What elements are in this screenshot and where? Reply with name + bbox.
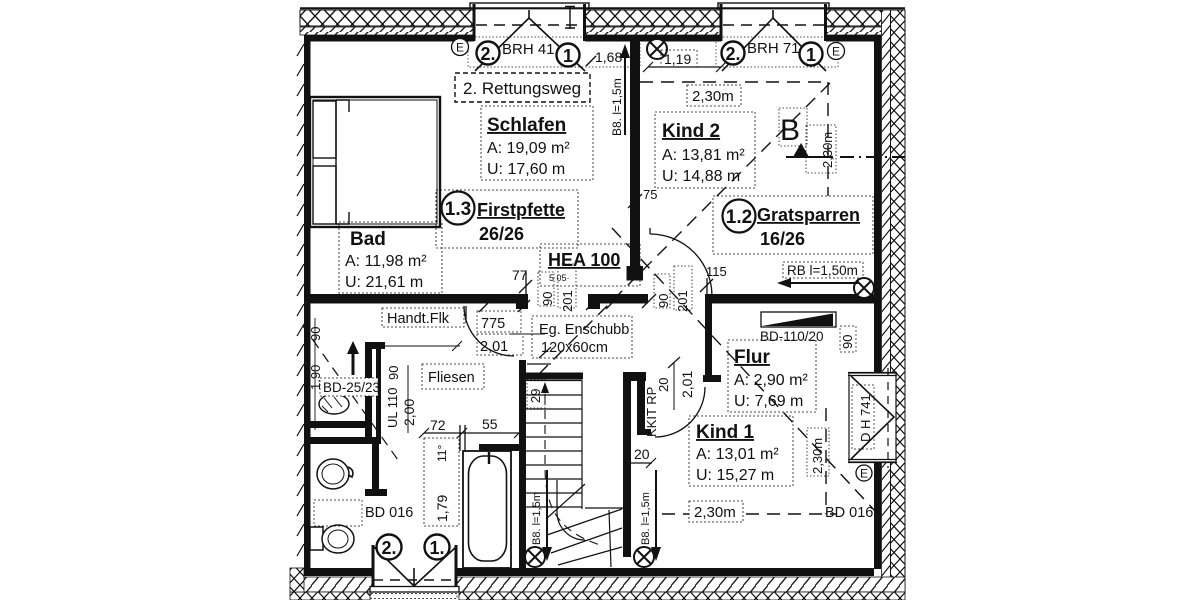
svg-text:E: E	[860, 467, 868, 481]
svg-text:BD 016: BD 016	[365, 505, 413, 521]
svg-text:2,30m: 2,30m	[810, 438, 825, 474]
svg-text:A: 11,98 m²: A: 11,98 m²	[345, 253, 427, 270]
svg-text:1.: 1.	[429, 538, 444, 558]
svg-text:1,68: 1,68	[595, 49, 622, 65]
svg-text:U: 17,60 m: U: 17,60 m	[487, 161, 565, 178]
svg-text:HEA 100: HEA 100	[548, 250, 620, 270]
svg-text:20: 20	[634, 446, 650, 462]
svg-text:29: 29	[528, 389, 543, 403]
svg-text:A: 13,01 m²: A: 13,01 m²	[696, 446, 779, 463]
svg-text:20: 20	[656, 378, 671, 392]
svg-text:Bad: Bad	[350, 229, 386, 250]
svg-text:A: 13,81 m²: A: 13,81 m²	[662, 147, 745, 164]
svg-text:55: 55	[482, 416, 498, 432]
svg-text:1: 1	[806, 45, 816, 65]
svg-text:U: 14,88 m: U: 14,88 m	[662, 168, 740, 185]
svg-text:BD 016: BD 016	[825, 505, 873, 521]
svg-text:2.: 2.	[725, 44, 740, 64]
svg-text:2,30m: 2,30m	[692, 88, 734, 105]
svg-text:1,19: 1,19	[664, 51, 691, 67]
svg-text:2. Rettungsweg: 2. Rettungsweg	[463, 79, 581, 98]
svg-text:A: 19,09 m²: A: 19,09 m²	[487, 140, 570, 157]
svg-text:B8. l=1,5m: B8. l=1,5m	[640, 492, 652, 545]
svg-text:1.3: 1.3	[445, 199, 471, 220]
svg-text:775: 775	[481, 316, 505, 332]
svg-text:E: E	[832, 45, 840, 59]
svg-text:KKIT RP: KKIT RP	[644, 387, 659, 437]
svg-text:72: 72	[430, 417, 446, 433]
svg-text:90: 90	[656, 294, 671, 308]
svg-text:Firstpfette: Firstpfette	[477, 200, 565, 220]
svg-text:90: 90	[540, 292, 555, 306]
svg-text:201: 201	[675, 290, 690, 312]
svg-text:Schlafen: Schlafen	[487, 115, 566, 136]
svg-text:Flur: Flur	[734, 347, 770, 368]
svg-text:2,00: 2,00	[401, 399, 417, 426]
svg-text:5 05·: 5 05·	[549, 273, 570, 283]
svg-text:1,79: 1,79	[434, 495, 450, 522]
svg-text:B8. l=1,5m: B8. l=1,5m	[531, 492, 543, 545]
svg-text:2,01: 2,01	[679, 371, 695, 398]
svg-text:U: 15,27 m: U: 15,27 m	[696, 467, 774, 484]
svg-text:Handt.Flk: Handt.Flk	[387, 311, 450, 327]
svg-text:1.2: 1.2	[726, 207, 752, 228]
svg-text:26/26: 26/26	[479, 224, 524, 244]
svg-text:Kind 1: Kind 1	[696, 422, 754, 443]
svg-text:BD-25/23: BD-25/23	[323, 380, 380, 395]
svg-text:120x60cm: 120x60cm	[541, 340, 608, 356]
svg-text:UL 110: UL 110	[385, 388, 400, 428]
svg-text:U: 7,69 m: U: 7,69 m	[734, 393, 803, 410]
svg-text:90: 90	[308, 327, 323, 341]
svg-text:B: B	[780, 114, 800, 147]
svg-text:2.: 2.	[480, 44, 495, 64]
svg-text:A: 2,90 m²: A: 2,90 m²	[734, 372, 808, 389]
svg-text:BRH 71: BRH 71	[747, 40, 800, 57]
svg-text:2.: 2.	[381, 538, 396, 558]
svg-text:RB l=1,50m: RB l=1,50m	[787, 263, 858, 278]
svg-text:75: 75	[643, 187, 657, 202]
svg-text:Gratsparren: Gratsparren	[757, 205, 860, 225]
svg-text:D H 741: D H 741	[858, 394, 873, 442]
svg-text:2,30m: 2,30m	[694, 504, 736, 521]
svg-text:11°: 11°	[435, 445, 449, 462]
svg-text:1: 1	[563, 46, 573, 66]
svg-text:BRH 41: BRH 41	[502, 41, 555, 58]
svg-text:201: 201	[560, 290, 575, 312]
svg-text:Eg. Enschubb: Eg. Enschubb	[539, 322, 629, 338]
svg-text:2,01: 2,01	[480, 339, 508, 355]
svg-text:BD-110/20: BD-110/20	[760, 329, 824, 344]
svg-text:Fliesen: Fliesen	[428, 370, 475, 386]
svg-text:90: 90	[386, 366, 401, 380]
svg-text:U: 21,61 m: U: 21,61 m	[345, 274, 423, 291]
svg-text:16/26: 16/26	[760, 229, 805, 249]
svg-text:90: 90	[840, 335, 855, 349]
svg-text:Kind 2: Kind 2	[662, 121, 720, 142]
svg-text:115: 115	[706, 264, 727, 279]
svg-text:B8. l=1,5m: B8. l=1,5m	[610, 78, 624, 136]
svg-text:E: E	[456, 41, 464, 55]
svg-text:2,30m: 2,30m	[820, 132, 835, 168]
